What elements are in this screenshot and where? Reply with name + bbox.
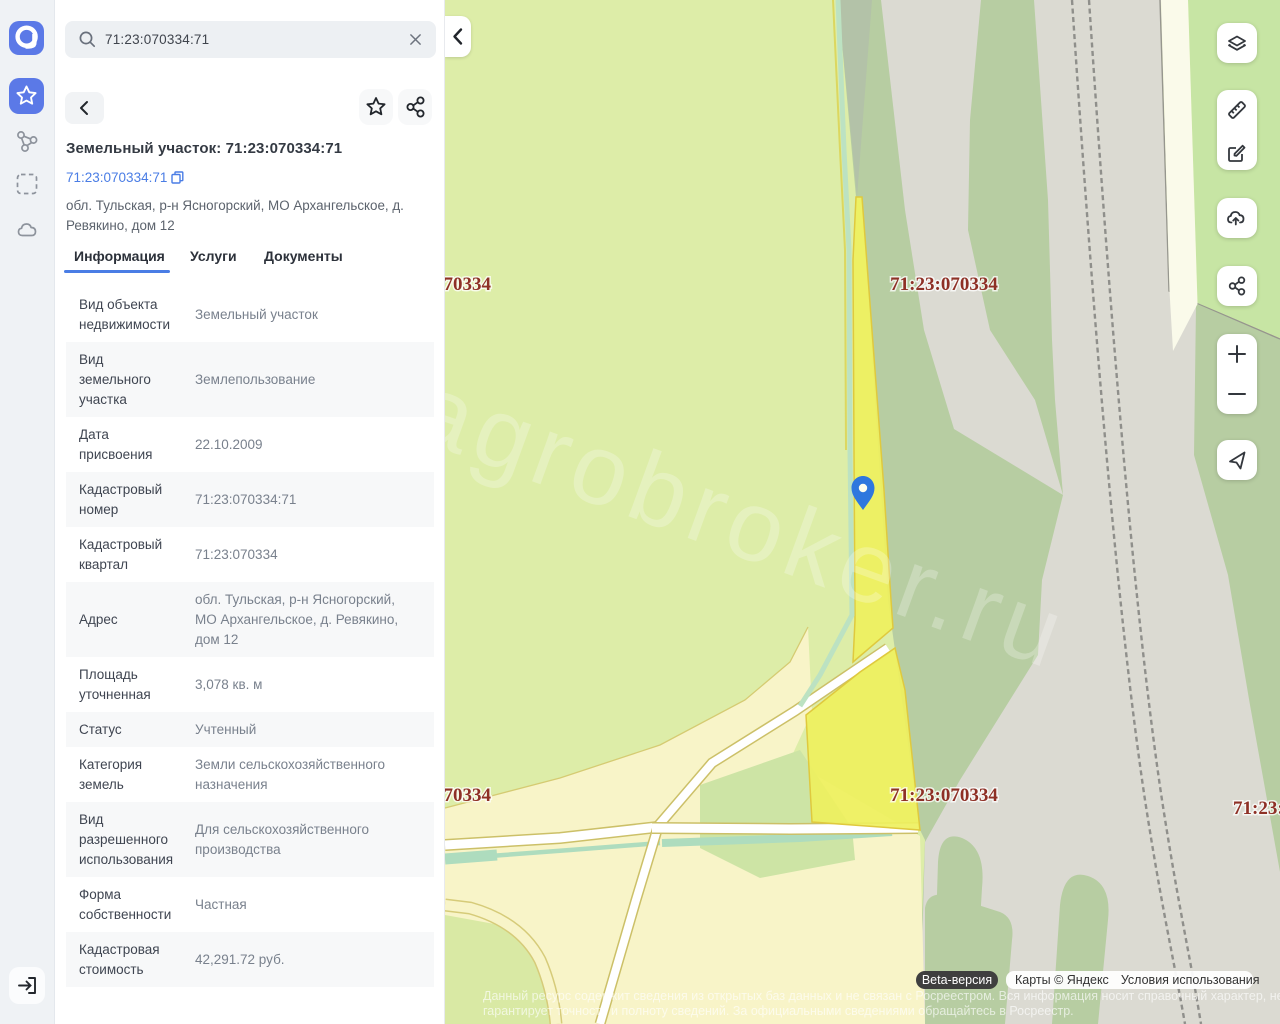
svg-text:71:23:070334: 71:23:070334 <box>890 785 998 806</box>
svg-text:Данный ресурс содержит сведени: Данный ресурс содержит сведения из откры… <box>483 989 1280 1003</box>
svg-text:71:23:070334: 71:23:070334 <box>1233 798 1280 819</box>
svg-text:71:23:070334: 71:23:070334 <box>890 274 998 295</box>
svg-text:гарантирует точность и полноту: гарантирует точность и полноту сведений.… <box>483 1004 1074 1018</box>
